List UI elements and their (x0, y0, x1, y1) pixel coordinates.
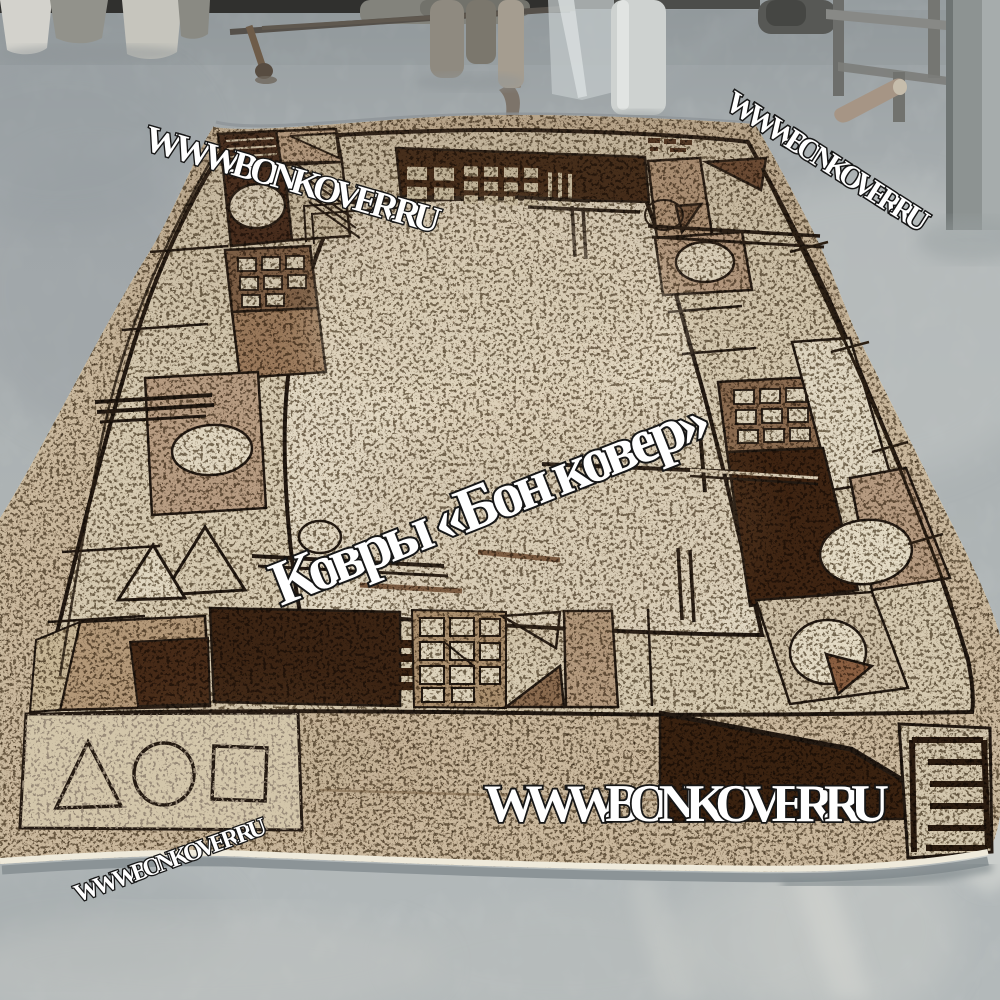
svg-text:WWW.BONKOVER.RU: WWW.BONKOVER.RU (484, 775, 889, 833)
